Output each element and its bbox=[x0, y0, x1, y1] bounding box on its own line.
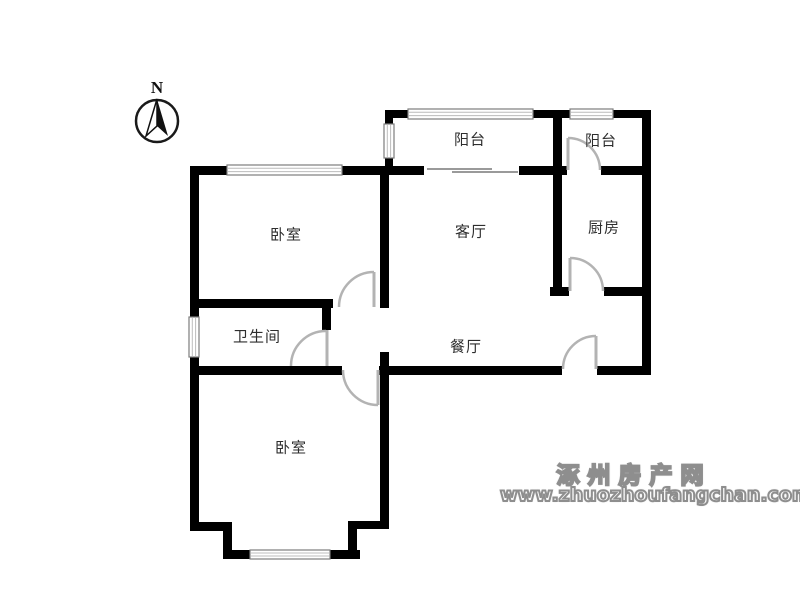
window-bathroom-side bbox=[189, 317, 199, 357]
floorplan-drawing: N bbox=[0, 0, 800, 600]
opening-entrance bbox=[562, 365, 597, 376]
compass-north-label: N bbox=[151, 78, 164, 97]
room-label-balcony-left: 阳台 bbox=[454, 133, 486, 148]
compass-icon: N bbox=[136, 78, 178, 142]
door-arc-entrance bbox=[563, 336, 596, 369]
floorplan-page: N 阳台 阳台 卧室 客厅 厨房 卫生间 餐厅 卧室 涿州房产网 www.zhu… bbox=[0, 0, 800, 600]
window-balcony-right-top bbox=[570, 109, 613, 119]
window-balcony-left-top bbox=[408, 109, 533, 119]
room-label-bathroom: 卫生间 bbox=[233, 330, 281, 345]
room-label-living: 客厅 bbox=[455, 225, 487, 240]
window-balcony-left-side bbox=[384, 124, 394, 158]
window-bedroom1-top bbox=[227, 165, 342, 175]
opening-bedroom1 bbox=[338, 298, 375, 309]
opening-bedroom2 bbox=[342, 365, 379, 376]
wall-bedroom2-right bbox=[380, 352, 389, 529]
room-label-balcony-right: 阳台 bbox=[585, 134, 617, 149]
opening-balcony-right bbox=[567, 165, 601, 176]
wall-bedroom2-bottom-right bbox=[348, 521, 389, 529]
wall-bathroom-stub bbox=[322, 299, 331, 330]
opening-sliding-door bbox=[424, 165, 519, 176]
watermark-url: www.zhuozhoufangchan.com bbox=[500, 484, 768, 506]
wall-kitchen-divider bbox=[553, 110, 562, 295]
opening-kitchen bbox=[569, 286, 604, 297]
wall-bedroom1-right bbox=[380, 166, 389, 308]
window-bay-bottom bbox=[250, 550, 330, 559]
door-arc-bathroom bbox=[291, 331, 326, 366]
room-label-dining: 餐厅 bbox=[450, 340, 482, 355]
wall-right-outer bbox=[642, 110, 651, 375]
wall-bathroom-top bbox=[190, 299, 333, 308]
room-label-kitchen: 厨房 bbox=[588, 221, 620, 236]
room-label-bedroom-top: 卧室 bbox=[270, 228, 302, 243]
room-label-bedroom-bottom: 卧室 bbox=[275, 441, 307, 456]
